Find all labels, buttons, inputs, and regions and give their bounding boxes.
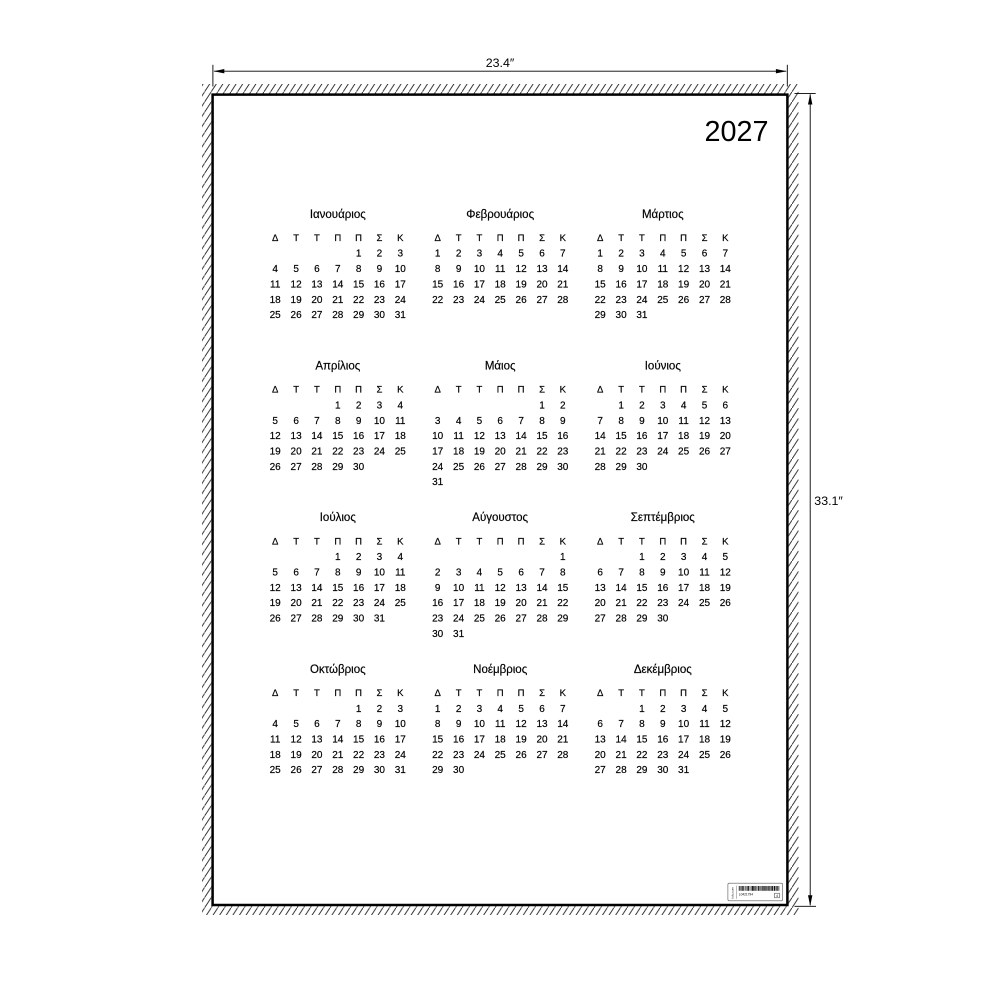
svg-text:1: 1 — [335, 400, 341, 411]
svg-text:27: 27 — [595, 614, 607, 625]
svg-text:10: 10 — [636, 264, 648, 275]
svg-text:17: 17 — [395, 735, 407, 746]
svg-text:19: 19 — [495, 598, 507, 609]
svg-text:Τ: Τ — [639, 536, 645, 547]
svg-text:15: 15 — [636, 583, 648, 594]
svg-text:9: 9 — [377, 719, 383, 730]
svg-text:14: 14 — [332, 279, 344, 290]
svg-text:6: 6 — [539, 704, 545, 715]
svg-text:11: 11 — [699, 568, 710, 579]
svg-text:15: 15 — [332, 431, 344, 442]
svg-text:5: 5 — [723, 704, 729, 715]
svg-text:21: 21 — [720, 279, 732, 290]
svg-text:9: 9 — [660, 568, 666, 579]
svg-text:27: 27 — [536, 295, 548, 306]
svg-text:19: 19 — [516, 279, 528, 290]
svg-text:17: 17 — [432, 447, 444, 458]
svg-text:18: 18 — [453, 447, 465, 458]
svg-text:24: 24 — [678, 598, 690, 609]
svg-text:2: 2 — [660, 704, 666, 715]
svg-text:Κ: Κ — [397, 688, 404, 699]
svg-text:Π: Π — [334, 385, 341, 396]
svg-text:16: 16 — [616, 279, 628, 290]
svg-text:19: 19 — [291, 750, 303, 761]
svg-text:27: 27 — [516, 614, 528, 625]
svg-text:25: 25 — [495, 750, 507, 761]
svg-text:31: 31 — [395, 765, 407, 776]
svg-text:Π: Π — [518, 233, 525, 244]
svg-text:4: 4 — [660, 249, 666, 260]
svg-text:Ιούνιος: Ιούνιος — [645, 361, 682, 373]
svg-text:2: 2 — [660, 552, 666, 563]
svg-text:24: 24 — [395, 295, 407, 306]
svg-text:17: 17 — [678, 735, 690, 746]
svg-text:1: 1 — [639, 552, 645, 563]
svg-text:1: 1 — [539, 400, 545, 411]
svg-text:21: 21 — [311, 447, 323, 458]
svg-text:7: 7 — [314, 416, 320, 427]
svg-text:9: 9 — [639, 416, 645, 427]
svg-text:20: 20 — [311, 750, 323, 761]
svg-text:26: 26 — [291, 765, 303, 776]
svg-text:19: 19 — [474, 447, 486, 458]
svg-text:Π: Π — [680, 536, 687, 547]
svg-text:Σεπτέμβριος: Σεπτέμβριος — [631, 512, 696, 524]
svg-text:Π: Π — [334, 536, 341, 547]
svg-text:8: 8 — [335, 568, 341, 579]
svg-text:Τ: Τ — [314, 536, 320, 547]
svg-text:9: 9 — [377, 264, 383, 275]
svg-text:Δ: Δ — [435, 385, 442, 396]
svg-text:15: 15 — [353, 279, 365, 290]
svg-text:19: 19 — [720, 735, 732, 746]
svg-text:Σ: Σ — [376, 385, 382, 396]
svg-text:30: 30 — [616, 310, 628, 321]
svg-text:14: 14 — [311, 583, 323, 594]
svg-text:18: 18 — [495, 735, 507, 746]
svg-text:24: 24 — [657, 447, 669, 458]
svg-text:15: 15 — [353, 735, 365, 746]
svg-text:3: 3 — [639, 249, 645, 260]
svg-text:27: 27 — [699, 295, 711, 306]
svg-text:29: 29 — [557, 614, 569, 625]
svg-text:1: 1 — [335, 552, 341, 563]
svg-text:2: 2 — [560, 400, 566, 411]
svg-text:11: 11 — [495, 264, 506, 275]
svg-text:4: 4 — [456, 416, 462, 427]
svg-text:7: 7 — [314, 568, 320, 579]
svg-text:23: 23 — [557, 447, 569, 458]
svg-text:26: 26 — [474, 462, 486, 473]
svg-text:5: 5 — [272, 568, 278, 579]
svg-text:Τ: Τ — [456, 536, 462, 547]
svg-text:8: 8 — [618, 416, 624, 427]
svg-text:2: 2 — [618, 249, 624, 260]
svg-text:2: 2 — [377, 249, 383, 260]
svg-text:9: 9 — [660, 719, 666, 730]
svg-text:23: 23 — [453, 750, 465, 761]
svg-text:5: 5 — [518, 704, 524, 715]
svg-text:18: 18 — [699, 735, 711, 746]
svg-text:16: 16 — [432, 598, 444, 609]
svg-text:25: 25 — [395, 598, 407, 609]
svg-text:Κ: Κ — [722, 688, 729, 699]
svg-text:30: 30 — [374, 310, 386, 321]
svg-text:12: 12 — [720, 568, 732, 579]
svg-text:18: 18 — [270, 295, 282, 306]
svg-text:8: 8 — [435, 264, 441, 275]
svg-text:24: 24 — [374, 598, 386, 609]
svg-text:Δεκέμβριος: Δεκέμβριος — [634, 664, 692, 676]
svg-text:Τ: Τ — [639, 233, 645, 244]
svg-text:7: 7 — [618, 568, 624, 579]
svg-text:25: 25 — [678, 447, 690, 458]
svg-text:6: 6 — [293, 568, 299, 579]
svg-text:23: 23 — [657, 750, 669, 761]
svg-text:16: 16 — [453, 279, 465, 290]
svg-text:16: 16 — [353, 583, 365, 594]
svg-text:20: 20 — [291, 598, 303, 609]
svg-text:6: 6 — [497, 416, 503, 427]
svg-text:22: 22 — [595, 295, 607, 306]
svg-text:6: 6 — [293, 416, 299, 427]
svg-text:3: 3 — [477, 704, 483, 715]
svg-text:4: 4 — [272, 719, 278, 730]
svg-text:23.4″: 23.4″ — [486, 56, 515, 70]
svg-text:Π: Π — [497, 688, 504, 699]
svg-text:19: 19 — [678, 279, 690, 290]
svg-text:Δ: Δ — [272, 536, 279, 547]
svg-text:7: 7 — [539, 568, 545, 579]
svg-text:21: 21 — [557, 279, 569, 290]
svg-text:28: 28 — [332, 310, 344, 321]
svg-text:23: 23 — [353, 598, 365, 609]
svg-text:5: 5 — [272, 416, 278, 427]
svg-text:Δ: Δ — [435, 536, 442, 547]
svg-text:11: 11 — [270, 279, 281, 290]
svg-text:Π: Π — [355, 536, 362, 547]
svg-text:29: 29 — [616, 462, 628, 473]
svg-text:14: 14 — [516, 431, 528, 442]
svg-text:Μάρτιος: Μάρτιος — [642, 209, 684, 221]
svg-text:26: 26 — [699, 447, 711, 458]
svg-text:28: 28 — [595, 462, 607, 473]
svg-text:1: 1 — [618, 400, 624, 411]
svg-text:27: 27 — [595, 765, 607, 776]
svg-text:18: 18 — [395, 431, 407, 442]
svg-text:8: 8 — [639, 568, 645, 579]
svg-text:Οκτώβριος: Οκτώβριος — [310, 664, 366, 676]
svg-text:30: 30 — [374, 765, 386, 776]
svg-text:17: 17 — [374, 583, 386, 594]
svg-text:26: 26 — [270, 462, 282, 473]
svg-text:Δ: Δ — [597, 688, 604, 699]
svg-text:29: 29 — [595, 310, 607, 321]
svg-text:1: 1 — [356, 704, 362, 715]
svg-text:Κ: Κ — [397, 385, 404, 396]
svg-text:Π: Π — [497, 233, 504, 244]
svg-text:31: 31 — [636, 310, 648, 321]
svg-text:27: 27 — [495, 462, 507, 473]
svg-text:17: 17 — [474, 735, 486, 746]
svg-text:2: 2 — [356, 552, 362, 563]
svg-text:30: 30 — [353, 614, 365, 625]
svg-text:23: 23 — [353, 447, 365, 458]
svg-text:22: 22 — [432, 295, 444, 306]
svg-text:8: 8 — [560, 568, 566, 579]
svg-text:14: 14 — [557, 719, 569, 730]
svg-text:5: 5 — [723, 552, 729, 563]
svg-text:5: 5 — [477, 416, 483, 427]
svg-text:Μάιος: Μάιος — [485, 361, 516, 373]
svg-text:22: 22 — [332, 598, 344, 609]
svg-text:3: 3 — [398, 249, 404, 260]
svg-text:1: 1 — [435, 704, 441, 715]
svg-text:Δ: Δ — [272, 688, 279, 699]
svg-text:10: 10 — [474, 264, 486, 275]
svg-text:6: 6 — [539, 249, 545, 260]
svg-text:3: 3 — [456, 568, 462, 579]
svg-text:20: 20 — [495, 447, 507, 458]
svg-text:11: 11 — [699, 719, 710, 730]
svg-text:25: 25 — [699, 598, 711, 609]
svg-text:4: 4 — [497, 704, 503, 715]
svg-text:Κ: Κ — [722, 536, 729, 547]
svg-text:21: 21 — [332, 750, 344, 761]
svg-text:Τ: Τ — [639, 688, 645, 699]
svg-text:Τ: Τ — [476, 536, 482, 547]
svg-text:3: 3 — [377, 552, 383, 563]
svg-text:30: 30 — [432, 629, 444, 640]
svg-text:11: 11 — [270, 735, 281, 746]
svg-text:18: 18 — [270, 750, 282, 761]
svg-text:Π: Π — [659, 688, 666, 699]
svg-text:Τ: Τ — [314, 688, 320, 699]
svg-text:18: 18 — [495, 279, 507, 290]
svg-text:27: 27 — [291, 462, 303, 473]
svg-text:Σ: Σ — [539, 385, 545, 396]
svg-text:Κ: Κ — [397, 233, 404, 244]
svg-text:10: 10 — [678, 568, 690, 579]
svg-text:Ιούλιος: Ιούλιος — [320, 512, 357, 524]
svg-text:11: 11 — [453, 431, 464, 442]
svg-text:28: 28 — [311, 462, 323, 473]
svg-text:28: 28 — [616, 765, 628, 776]
svg-text:28: 28 — [720, 295, 732, 306]
svg-text:23: 23 — [657, 598, 669, 609]
svg-text:Τ: Τ — [476, 233, 482, 244]
svg-text:14: 14 — [616, 735, 628, 746]
svg-text:2: 2 — [377, 704, 383, 715]
svg-text:5: 5 — [702, 400, 708, 411]
svg-text:23: 23 — [616, 295, 628, 306]
svg-text:5: 5 — [293, 264, 299, 275]
svg-text:10: 10 — [374, 568, 386, 579]
svg-text:16: 16 — [557, 431, 569, 442]
svg-text:Τ: Τ — [456, 233, 462, 244]
svg-text:21: 21 — [516, 447, 528, 458]
svg-text:5: 5 — [518, 249, 524, 260]
svg-text:21: 21 — [595, 447, 607, 458]
svg-text:4: 4 — [272, 264, 278, 275]
svg-text:Π: Π — [659, 233, 666, 244]
svg-text:25: 25 — [474, 614, 486, 625]
svg-text:30: 30 — [657, 765, 669, 776]
svg-text:22: 22 — [432, 750, 444, 761]
svg-text:2027: 2027 — [704, 116, 768, 148]
svg-text:8: 8 — [356, 264, 362, 275]
svg-text:2: 2 — [356, 400, 362, 411]
svg-text:29: 29 — [536, 462, 548, 473]
svg-text:14: 14 — [332, 735, 344, 746]
svg-text:8: 8 — [356, 719, 362, 730]
svg-text:16: 16 — [636, 431, 648, 442]
svg-text:15: 15 — [432, 279, 444, 290]
svg-text:29: 29 — [332, 614, 344, 625]
svg-text:7: 7 — [518, 416, 524, 427]
svg-text:33.1″: 33.1″ — [814, 494, 843, 508]
svg-text:21: 21 — [311, 598, 323, 609]
svg-text:21: 21 — [616, 598, 628, 609]
svg-text:Δ: Δ — [597, 385, 604, 396]
svg-text:17: 17 — [453, 598, 465, 609]
svg-text:26: 26 — [516, 750, 528, 761]
svg-text:7: 7 — [335, 719, 341, 730]
svg-text:Τ: Τ — [293, 536, 299, 547]
svg-text:11: 11 — [395, 416, 406, 427]
svg-text:2: 2 — [456, 249, 462, 260]
svg-text:16: 16 — [353, 431, 365, 442]
svg-text:29: 29 — [636, 765, 648, 776]
svg-text:20: 20 — [595, 750, 607, 761]
svg-text:Π: Π — [355, 385, 362, 396]
svg-text:18: 18 — [474, 598, 486, 609]
svg-text:18: 18 — [678, 431, 690, 442]
svg-text:29: 29 — [353, 765, 365, 776]
svg-text:22: 22 — [353, 295, 365, 306]
svg-text:22: 22 — [636, 598, 648, 609]
svg-text:14: 14 — [595, 431, 607, 442]
svg-text:Π: Π — [334, 688, 341, 699]
svg-text:13: 13 — [536, 264, 548, 275]
svg-text:Τ: Τ — [476, 688, 482, 699]
svg-text:3: 3 — [681, 704, 687, 715]
svg-text:14: 14 — [311, 431, 323, 442]
svg-text:22: 22 — [353, 750, 365, 761]
svg-text:24: 24 — [474, 295, 486, 306]
svg-text:20: 20 — [311, 295, 323, 306]
svg-text:28: 28 — [557, 750, 569, 761]
svg-text:Τ: Τ — [639, 385, 645, 396]
svg-text:17: 17 — [678, 583, 690, 594]
svg-text:Π: Π — [518, 385, 525, 396]
svg-text:2: 2 — [639, 400, 645, 411]
svg-text:20: 20 — [536, 735, 548, 746]
svg-text:Νοέμβριος: Νοέμβριος — [473, 664, 528, 676]
svg-text:Δ: Δ — [435, 233, 442, 244]
svg-text:9: 9 — [618, 264, 624, 275]
svg-text:Δ: Δ — [435, 688, 442, 699]
svg-text:22: 22 — [536, 447, 548, 458]
svg-text:1: 1 — [597, 249, 603, 260]
svg-text:6: 6 — [314, 264, 320, 275]
svg-text:30: 30 — [557, 462, 569, 473]
svg-text:13: 13 — [311, 279, 323, 290]
svg-text:23: 23 — [374, 750, 386, 761]
svg-text:Τ: Τ — [618, 233, 624, 244]
svg-text:9: 9 — [560, 416, 566, 427]
svg-text:6: 6 — [314, 719, 320, 730]
svg-text:23: 23 — [374, 295, 386, 306]
svg-text:Κ: Κ — [722, 385, 729, 396]
svg-text:8: 8 — [639, 719, 645, 730]
svg-text:12: 12 — [474, 431, 486, 442]
svg-text:25: 25 — [699, 750, 711, 761]
svg-text:12: 12 — [678, 264, 690, 275]
svg-text:31: 31 — [374, 614, 386, 625]
svg-text:1: 1 — [356, 249, 362, 260]
svg-text:13: 13 — [595, 735, 607, 746]
svg-text:Π: Π — [680, 688, 687, 699]
svg-text:13: 13 — [311, 735, 323, 746]
svg-text:25: 25 — [657, 295, 669, 306]
svg-text:13: 13 — [536, 719, 548, 730]
svg-text:20: 20 — [720, 431, 732, 442]
svg-text:8: 8 — [435, 719, 441, 730]
svg-text:25: 25 — [453, 462, 465, 473]
svg-text:Κ: Κ — [560, 536, 567, 547]
svg-text:10: 10 — [374, 416, 386, 427]
svg-text:24: 24 — [374, 447, 386, 458]
svg-text:15: 15 — [557, 583, 569, 594]
svg-text:16: 16 — [374, 735, 386, 746]
svg-text:Π: Π — [355, 688, 362, 699]
svg-text:25: 25 — [270, 765, 282, 776]
svg-text:13: 13 — [720, 416, 732, 427]
svg-text:26: 26 — [720, 750, 732, 761]
svg-text:Δ: Δ — [272, 233, 279, 244]
svg-text:22: 22 — [616, 447, 628, 458]
svg-text:Τ: Τ — [456, 688, 462, 699]
svg-text:18: 18 — [657, 279, 669, 290]
svg-text:26: 26 — [495, 614, 507, 625]
svg-text:Κ: Κ — [560, 688, 567, 699]
svg-text:19: 19 — [270, 598, 282, 609]
svg-text:Τ: Τ — [314, 385, 320, 396]
svg-text:9: 9 — [456, 264, 462, 275]
svg-text:22: 22 — [636, 750, 648, 761]
svg-text:12: 12 — [291, 279, 303, 290]
svg-text:26: 26 — [720, 598, 732, 609]
svg-text:28: 28 — [311, 614, 323, 625]
svg-text:15: 15 — [595, 279, 607, 290]
svg-text:Π: Π — [334, 233, 341, 244]
svg-text:9: 9 — [456, 719, 462, 730]
svg-text:8: 8 — [539, 416, 545, 427]
svg-text:13: 13 — [291, 431, 303, 442]
svg-text:4: 4 — [477, 568, 483, 579]
svg-text:27: 27 — [291, 614, 303, 625]
svg-text:Π: Π — [497, 385, 504, 396]
svg-text:12: 12 — [699, 416, 711, 427]
svg-text:16: 16 — [453, 735, 465, 746]
svg-text:Τ: Τ — [456, 385, 462, 396]
svg-text:20: 20 — [536, 279, 548, 290]
svg-text:Σ: Σ — [702, 385, 708, 396]
svg-text:31: 31 — [395, 310, 407, 321]
svg-text:Σ: Σ — [702, 536, 708, 547]
svg-text:31: 31 — [678, 765, 690, 776]
